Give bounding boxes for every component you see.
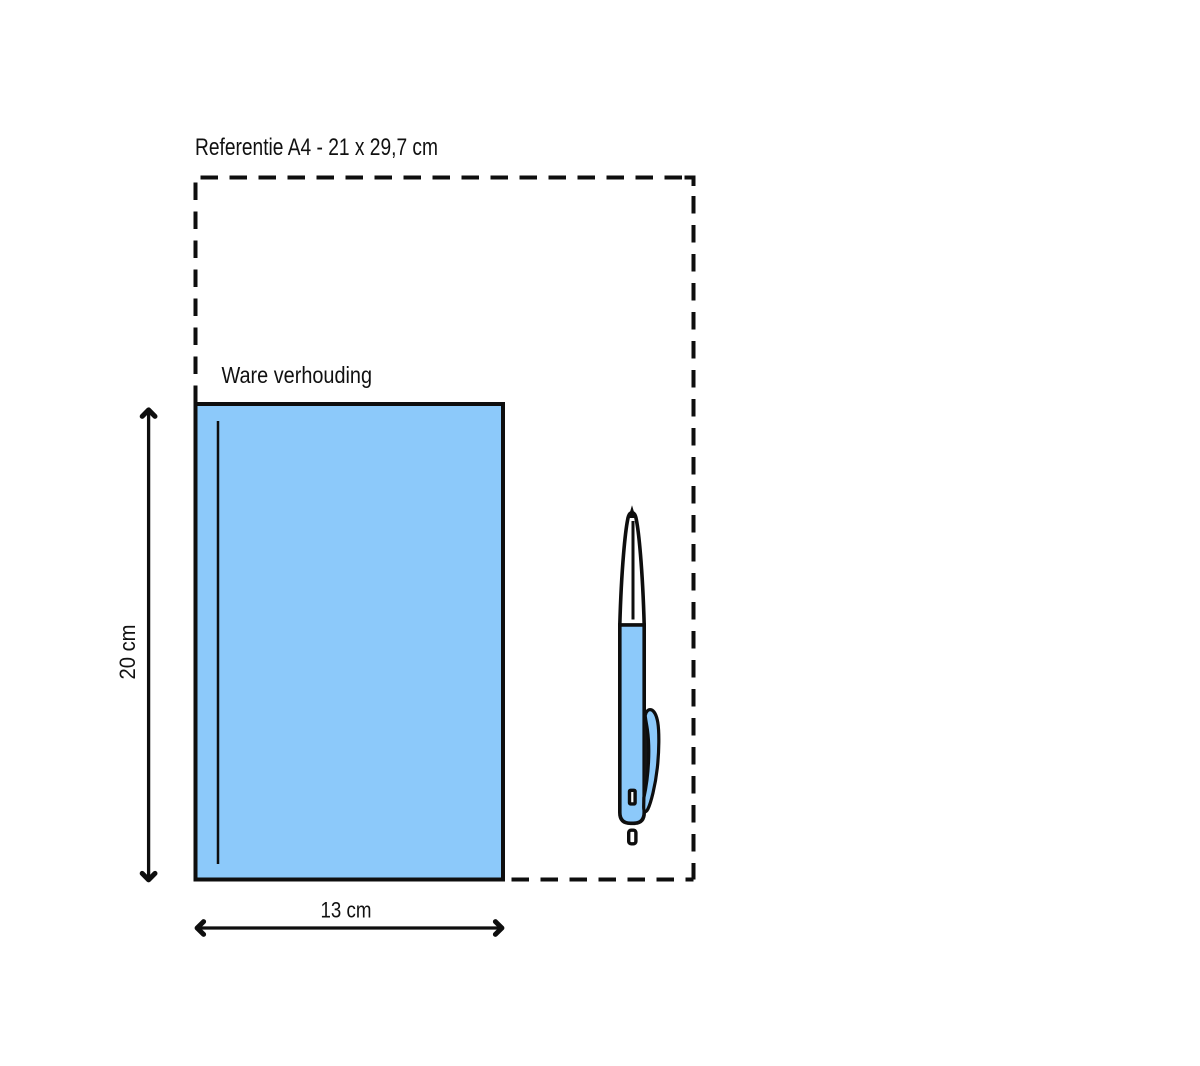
svg-text:Ware verhouding: Ware verhouding — [222, 362, 373, 388]
svg-text:13 cm: 13 cm — [321, 898, 372, 923]
svg-text:Referentie A4 - 21 x 29,7 cm: Referentie A4 - 21 x 29,7 cm — [195, 134, 438, 161]
svg-text:20 cm: 20 cm — [115, 625, 140, 680]
